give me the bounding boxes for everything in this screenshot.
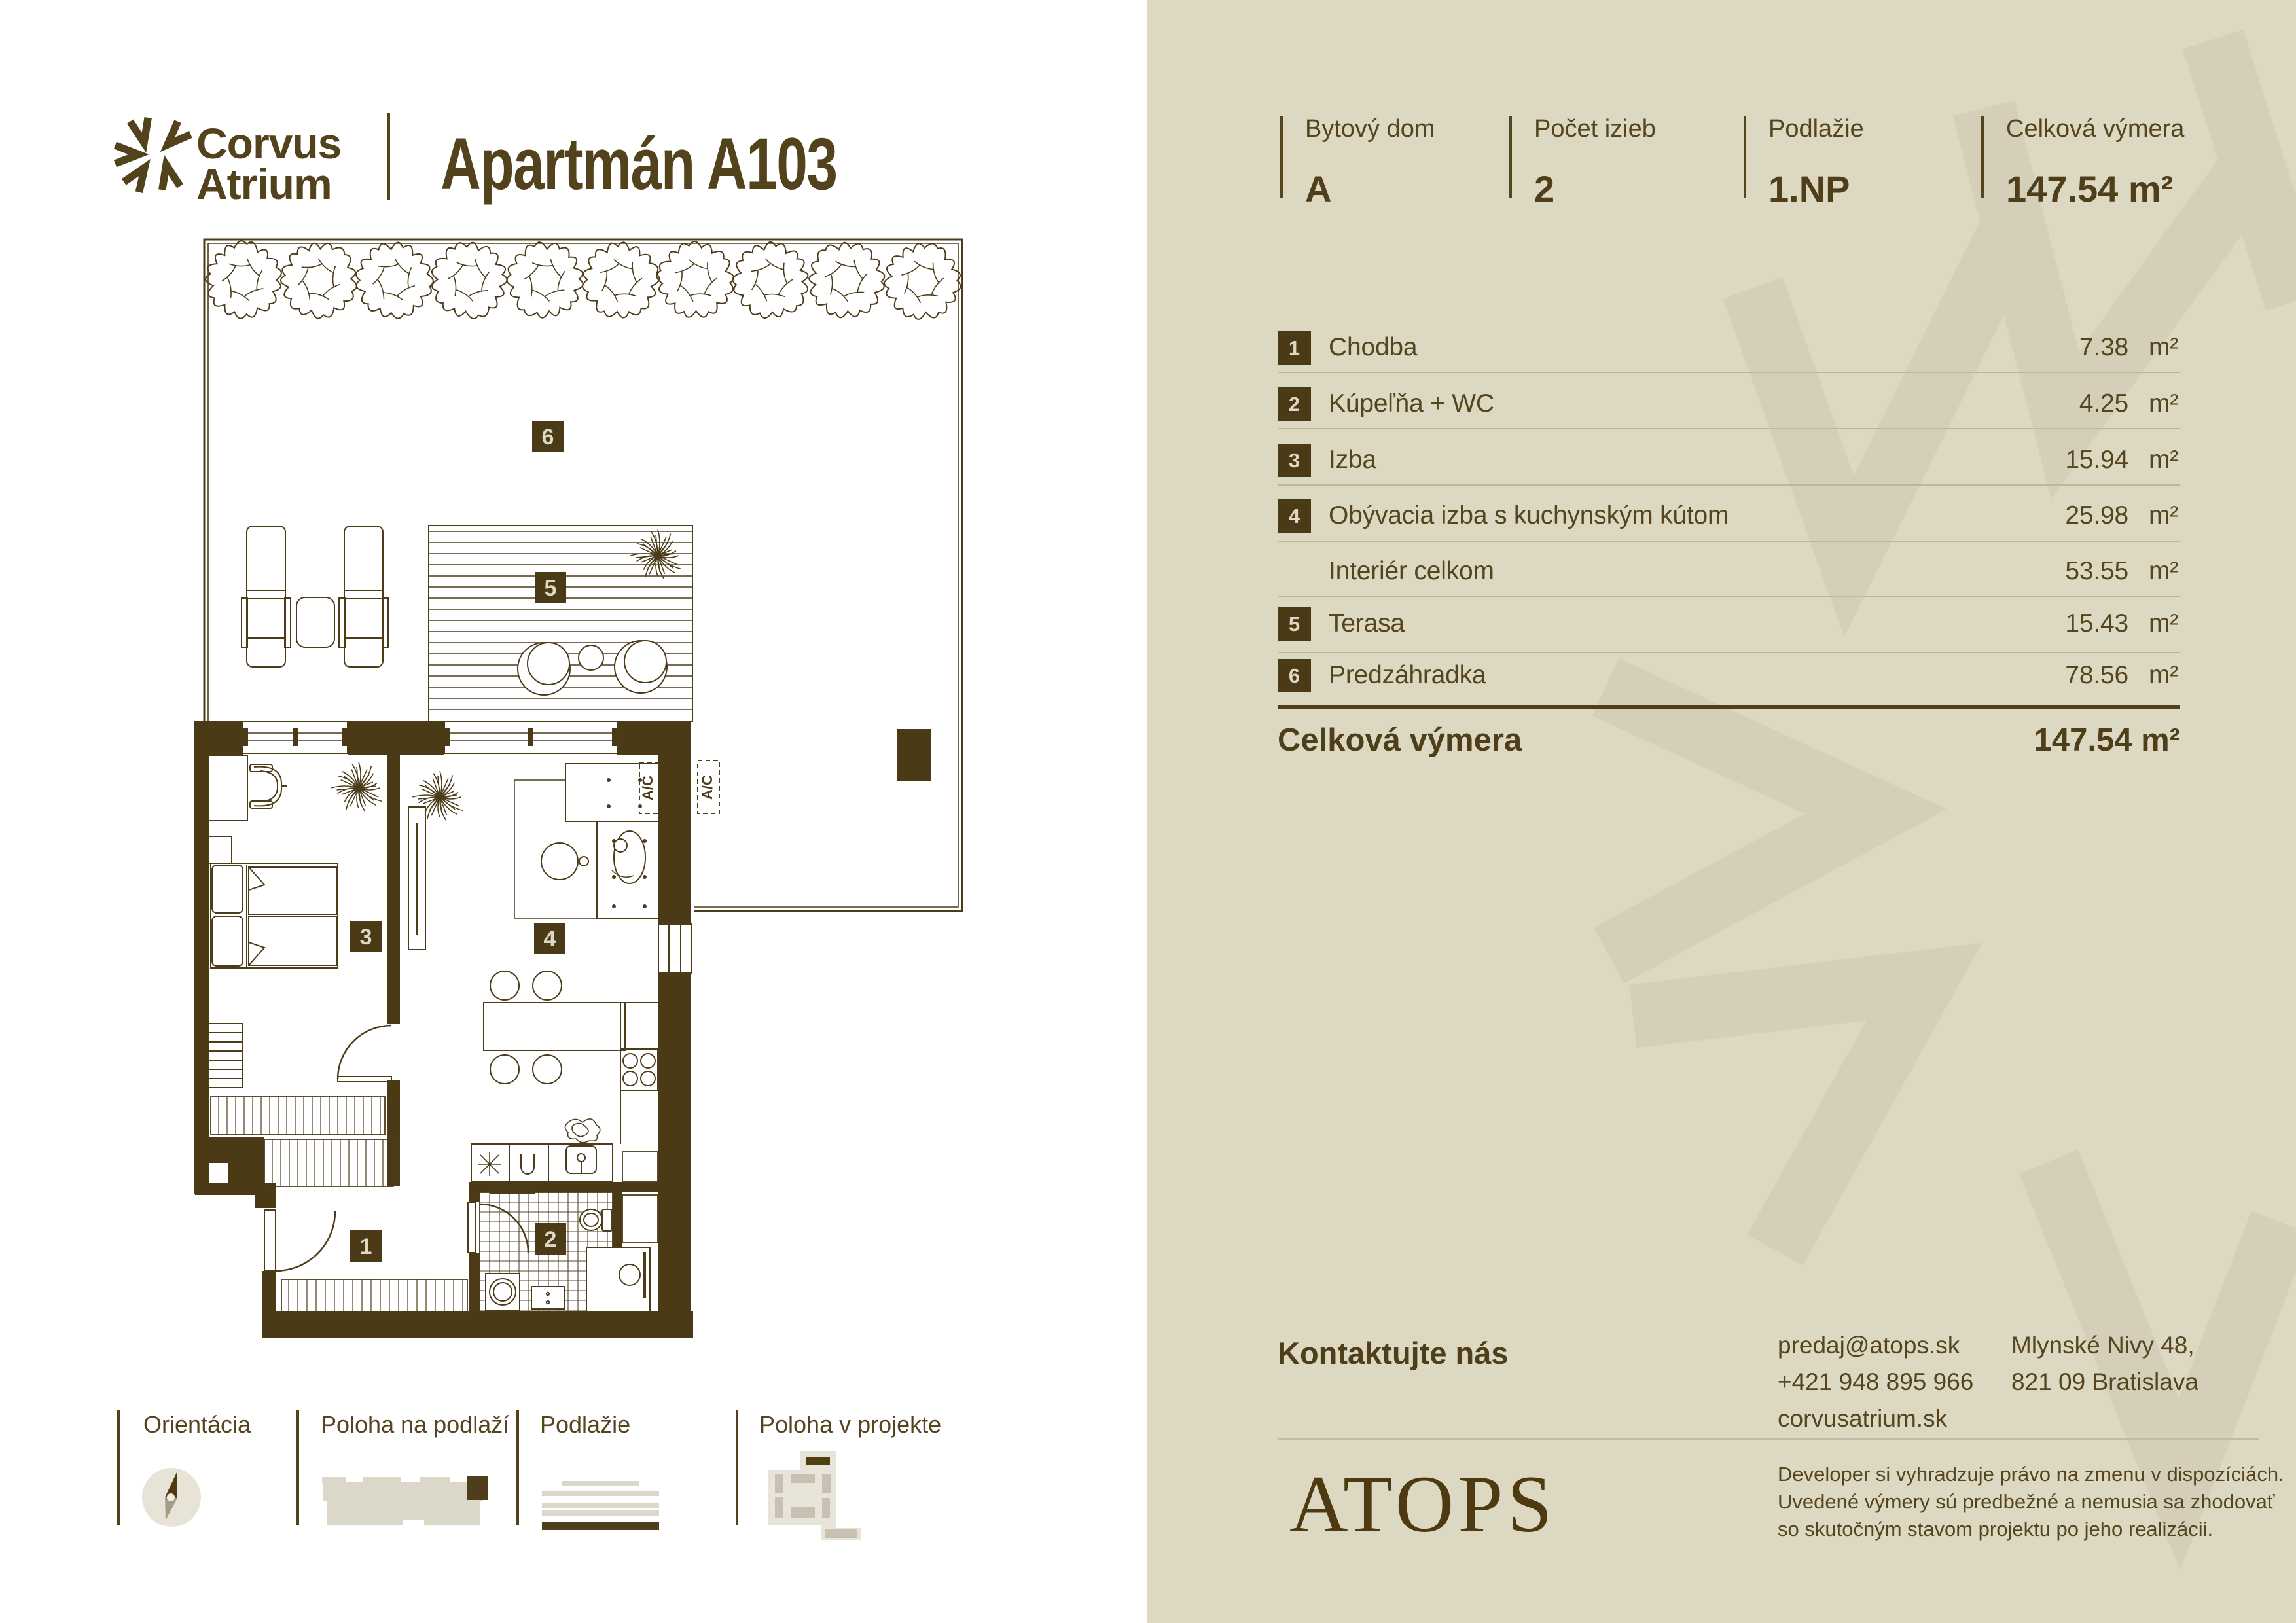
svg-text:A/C: A/C	[639, 776, 656, 800]
svg-text:A/C: A/C	[699, 775, 715, 800]
svg-text:4: 4	[544, 927, 556, 952]
svg-text:1: 1	[360, 1234, 372, 1259]
svg-text:5: 5	[545, 576, 557, 601]
svg-text:6: 6	[542, 425, 554, 450]
svg-text:3: 3	[360, 925, 372, 950]
svg-text:2: 2	[545, 1227, 557, 1252]
